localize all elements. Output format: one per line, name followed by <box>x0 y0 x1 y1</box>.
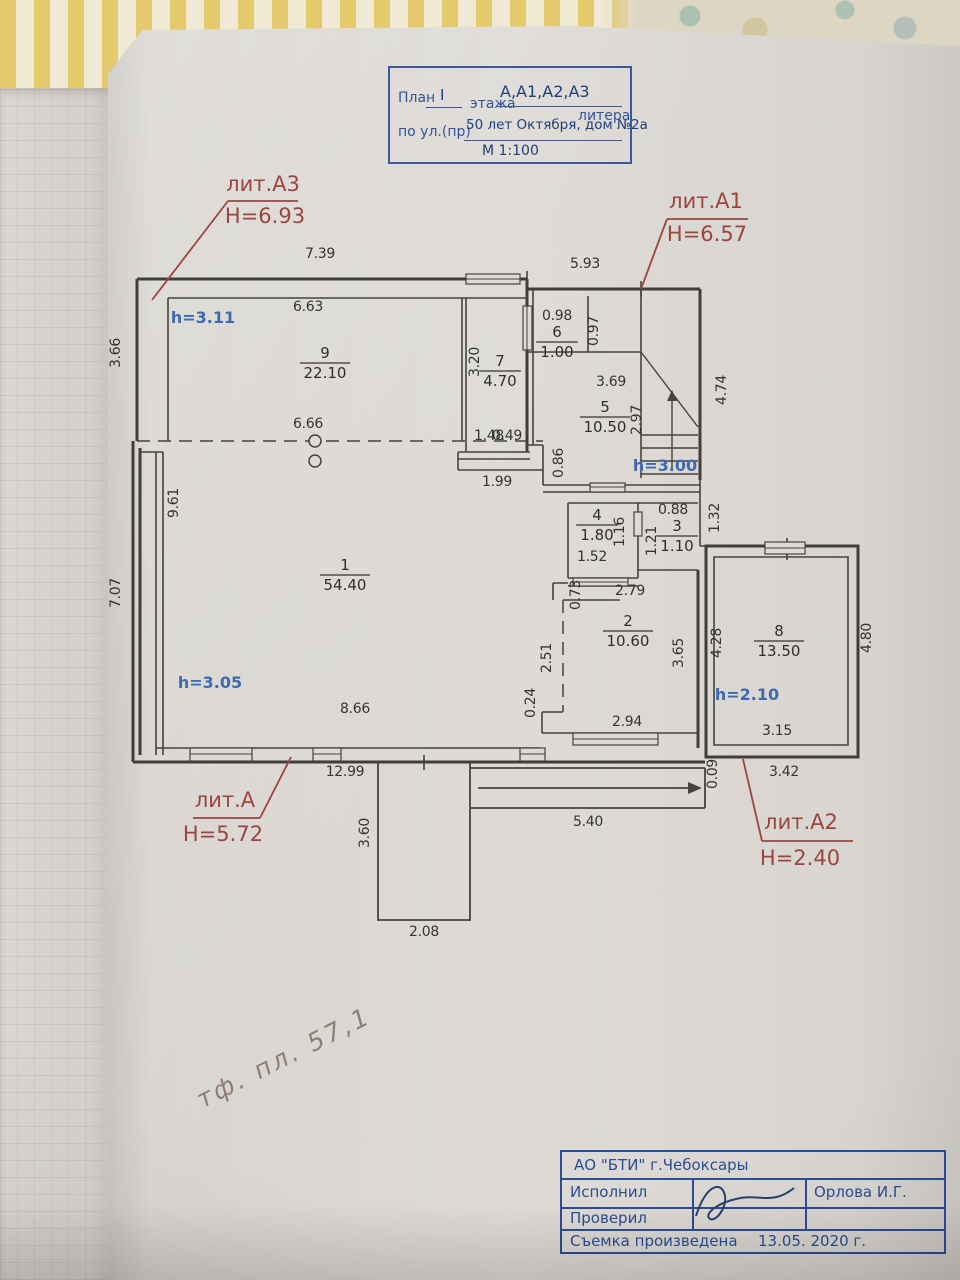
dimension-label: 4.80 <box>859 623 875 653</box>
dimension-label: 0.73 <box>568 580 584 610</box>
room-number: 2 <box>623 612 633 630</box>
dimension-label: 3.60 <box>357 818 373 848</box>
room-area: 10.50 <box>584 418 627 436</box>
room-area: 10.60 <box>607 632 650 650</box>
litera-label: лит.А2 <box>764 810 838 834</box>
dimension-label: 2.97 <box>629 405 645 435</box>
room-number: 8 <box>774 622 784 640</box>
litera-leader-line <box>743 759 762 841</box>
dimension-label: 12.99 <box>326 764 365 780</box>
room-number: 6 <box>552 323 562 341</box>
height-mark: h=2.10 <box>715 685 779 704</box>
dimension-label: 0.97 <box>586 316 602 346</box>
litera-label: лит.А3 <box>226 172 300 196</box>
room-number: 7 <box>495 352 505 370</box>
porch-and-ramp <box>378 762 705 920</box>
title-block: План I этажа А,А1,А2,А3 литера по ул.(пр… <box>388 66 632 164</box>
dimension-label: 4.74 <box>714 375 730 405</box>
dimension-label: 5.93 <box>570 256 600 272</box>
stamp-divider <box>805 1178 807 1229</box>
height-mark: h=3.11 <box>171 308 235 327</box>
stamp-checker-label: Проверил <box>570 1209 647 1227</box>
dimension-label: 1.21 <box>644 526 660 556</box>
dimension-label: 3.42 <box>769 764 799 780</box>
title-floor-underline <box>426 107 462 108</box>
dimension-label: 0.49 <box>492 428 522 444</box>
room-number: 5 <box>600 398 610 416</box>
dimension-label: 0.86 <box>551 448 567 478</box>
room-number: 1 <box>340 556 350 574</box>
dimension-label: 5.40 <box>573 814 603 830</box>
dimension-label: 0.24 <box>523 688 539 718</box>
title-street-label: по ул.(пр) <box>398 124 471 140</box>
dimension-label: 1.32 <box>707 503 723 533</box>
litera-leader-line <box>641 219 667 289</box>
room-area: 13.50 <box>758 642 801 660</box>
dimension-label: 0.98 <box>542 308 572 324</box>
dimension-label: 2.79 <box>615 583 645 599</box>
plan-labels: 7.395.936.633.206.661.480.491.990.860.98… <box>108 172 875 940</box>
dimension-label: 0.09 <box>705 759 721 789</box>
title-street-value: 50 лет Октября, дом №2а <box>466 117 648 133</box>
room-area: 54.40 <box>324 576 367 594</box>
litera-height: Н=6.57 <box>667 222 747 246</box>
dimension-label: 1.52 <box>577 549 607 565</box>
stamp-divider <box>562 1229 944 1231</box>
litera-height: Н=5.72 <box>183 822 263 846</box>
title-street-underline <box>464 140 622 141</box>
litera-label: лит.А <box>195 788 256 812</box>
room-area: 1.00 <box>540 343 573 361</box>
height-mark: h=3.05 <box>178 673 242 692</box>
stamp-executor-label: Исполнил <box>570 1183 647 1201</box>
dimension-label: 2.51 <box>539 643 555 673</box>
dimension-label: 3.15 <box>762 723 792 739</box>
dimension-label: 6.63 <box>293 299 323 315</box>
dimension-label: 3.20 <box>467 347 483 377</box>
signature <box>688 1176 800 1226</box>
room-area: 4.70 <box>483 372 516 390</box>
survey-marks <box>309 435 321 467</box>
title-scale: М 1:100 <box>482 143 539 159</box>
dimension-label: 8.66 <box>340 701 370 717</box>
floor-plan-drawing: 7.395.936.633.206.661.480.491.990.860.98… <box>0 0 960 1280</box>
dimension-label: 1.16 <box>612 517 628 547</box>
room-area: 1.10 <box>660 537 693 555</box>
litera-leader-line <box>260 757 291 818</box>
room-number: 9 <box>320 344 330 362</box>
dimension-label: 0.88 <box>658 502 688 518</box>
dimension-label: 2.08 <box>409 924 439 940</box>
dimension-label: 3.65 <box>671 638 687 668</box>
dimension-label: 6.66 <box>293 416 323 432</box>
dimension-label: 1.99 <box>482 474 512 490</box>
room-area: 22.10 <box>304 364 347 382</box>
height-mark: h=3.00 <box>633 456 697 475</box>
title-floor-value: I <box>440 86 444 104</box>
room-number: 4 <box>592 506 602 524</box>
dimension-label: 3.66 <box>108 338 124 368</box>
dimension-label: 3.69 <box>596 374 626 390</box>
dimension-label: 7.07 <box>108 578 124 608</box>
litera-height: Н=2.40 <box>760 846 840 870</box>
stamp-survey-label: Съемка произведена <box>570 1232 738 1250</box>
litera-height: Н=6.93 <box>225 204 305 228</box>
dimension-label: 9.61 <box>166 488 182 518</box>
stamp-organization: АО "БТИ" г.Чебоксары <box>574 1156 749 1174</box>
room-area: 1.80 <box>580 526 613 544</box>
dimension-label: 4.28 <box>709 628 725 658</box>
title-litera-underline <box>496 106 622 107</box>
title-plan-label: План <box>398 90 435 106</box>
stamp-table: АО "БТИ" г.Чебоксары Исполнил Орлова И.Г… <box>560 1150 946 1254</box>
litera-leader-line <box>152 201 228 300</box>
stamp-survey-date: 13.05. 2020 г. <box>758 1232 866 1250</box>
stamp-executor-name: Орлова И.Г. <box>814 1183 907 1201</box>
room-number: 3 <box>672 517 682 535</box>
title-litera-value: А,А1,А2,А3 <box>500 82 590 101</box>
dimension-label: 2.94 <box>612 714 642 730</box>
dimension-label: 7.39 <box>305 246 335 262</box>
litera-label: лит.А1 <box>669 189 743 213</box>
